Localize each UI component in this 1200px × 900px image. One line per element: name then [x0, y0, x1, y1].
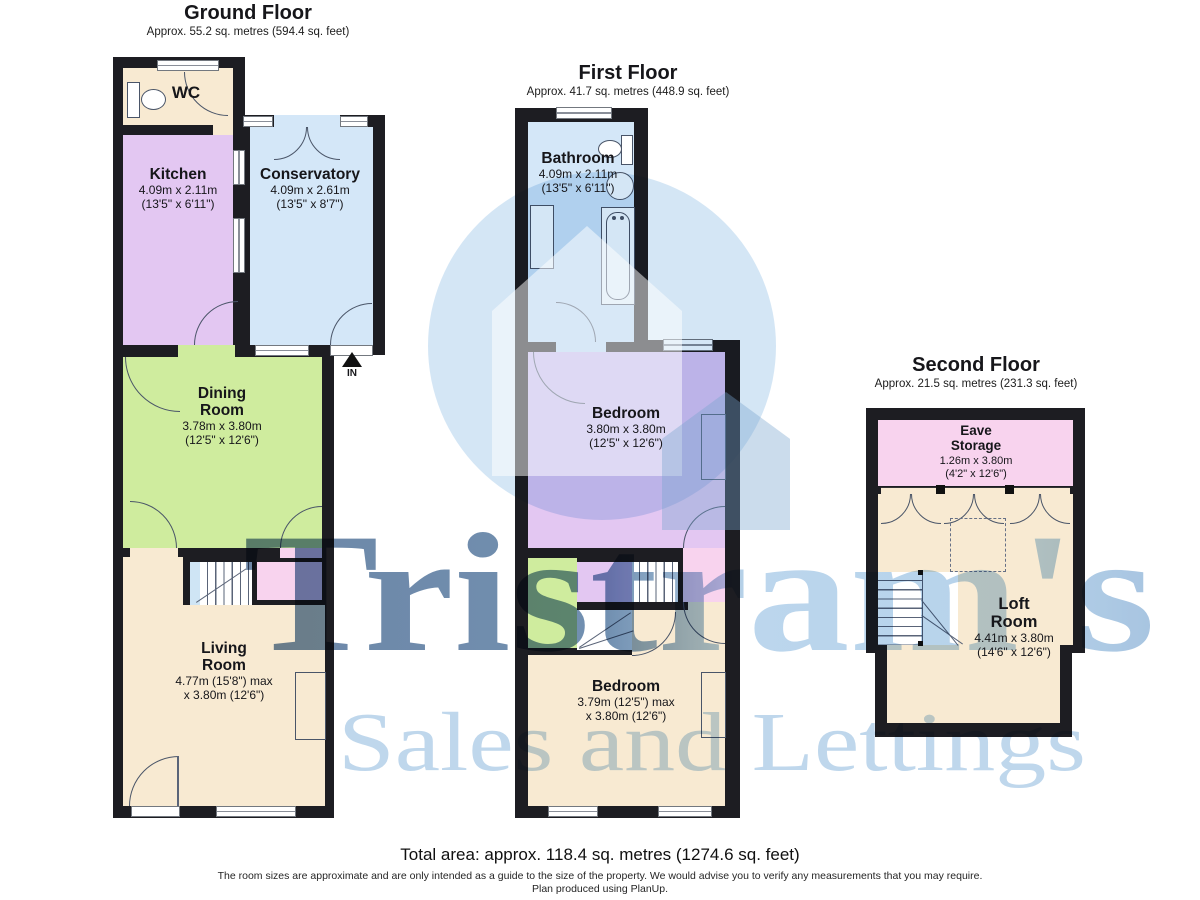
window — [658, 806, 712, 817]
toilet-bowl-icon — [141, 89, 166, 110]
window — [233, 150, 245, 185]
window — [556, 107, 612, 119]
doorway-opening — [280, 548, 322, 558]
wall-post — [1005, 485, 1014, 494]
room-dimensions: 3.80m x 3.80m — [586, 423, 665, 436]
room-name: Bedroom — [586, 405, 665, 422]
bathtub-inner — [606, 212, 630, 300]
window — [255, 345, 309, 356]
doorway-opening — [213, 125, 233, 135]
landing-floor — [577, 562, 632, 602]
room-name: Conservatory — [260, 166, 360, 183]
room-label-loft: Loft Room 4.41m x 3.80m (14'6" x 12'6") — [974, 595, 1053, 660]
room-label-conservatory: Conservatory 4.09m x 2.61m (13'5" x 8'7"… — [260, 166, 360, 211]
room-name: Living Room — [189, 640, 259, 674]
tap-icon — [620, 216, 624, 220]
room-label-wc: WC — [172, 84, 200, 103]
wardrobe-outline — [701, 672, 726, 738]
stair-winder-line — [921, 615, 963, 645]
room-dimensions: (13'5" x 6'11") — [539, 182, 617, 195]
room-dimensions: (12'5" x 12'6") — [182, 434, 261, 447]
door-leaf — [177, 756, 179, 806]
room-dimensions: 4.77m (15'8") max — [175, 675, 272, 688]
stair-treads — [878, 572, 922, 645]
room-label-bedroom1: Bedroom 3.80m x 3.80m (12'5" x 12'6") — [586, 405, 665, 450]
toilet-cistern-icon — [621, 135, 633, 165]
closet-floor — [257, 562, 322, 600]
stair-rail — [922, 572, 923, 645]
furniture-outline — [295, 672, 326, 740]
tap-icon — [612, 216, 616, 220]
room-name: Bathroom — [539, 150, 617, 167]
room-label-eave-storage: Eave Storage 1.26m x 3.80m (4'2" x 12'6"… — [940, 424, 1013, 480]
entrance-label: IN — [347, 368, 357, 379]
cupboard-opening — [881, 487, 1070, 494]
total-area-text: Total area: approx. 118.4 sq. metres (12… — [0, 845, 1200, 865]
doorway-opening — [274, 115, 340, 127]
room-dimensions: 4.41m x 3.80m — [974, 632, 1053, 645]
room-label-living: Living Room 4.77m (15'8") max x 3.80m (1… — [175, 640, 272, 702]
room-name: Kitchen — [139, 166, 217, 183]
first-floor-title: First Floor — [579, 62, 678, 85]
room-dimensions: x 3.80m (12'6") — [175, 689, 272, 702]
room-dimensions: 3.79m (12'5") max — [577, 696, 674, 709]
staircase-down — [577, 610, 632, 650]
stair-winder-line — [579, 612, 631, 648]
doorway-opening — [683, 548, 725, 558]
produced-by-text: Plan produced using PlanUp. — [0, 883, 1200, 895]
window — [243, 116, 273, 127]
staircase — [878, 572, 958, 645]
room-name: WC — [172, 84, 200, 103]
room-dimensions: (4'2" x 12'6") — [940, 468, 1013, 480]
window — [340, 116, 368, 127]
window — [233, 218, 245, 273]
second-floor-subtitle: Approx. 21.5 sq. metres (231.3 sq. feet) — [875, 378, 1078, 390]
room-dimensions: 4.09m x 2.61m — [260, 184, 360, 197]
room-dimensions: 3.78m x 3.80m — [182, 420, 261, 433]
room-dimensions: (14'6" x 12'6") — [974, 646, 1053, 659]
second-floor-title: Second Floor — [912, 354, 1040, 377]
room-dimensions: x 3.80m (12'6") — [577, 710, 674, 723]
window — [548, 806, 598, 817]
landing-floor — [528, 558, 577, 648]
room-name: Dining Room — [187, 385, 257, 419]
stair-winder-line — [921, 600, 959, 646]
disclaimer-text: The room sizes are approximate and are o… — [0, 870, 1200, 882]
room-name: Eave Storage — [941, 424, 1011, 454]
newel-post — [918, 641, 923, 646]
room-name: Loft Room — [984, 595, 1044, 631]
radiator-icon — [530, 205, 554, 269]
hallway-floor — [123, 557, 183, 605]
room-name: Bedroom — [577, 678, 674, 695]
toilet-cistern-icon — [127, 82, 140, 118]
room-dimensions: 4.09m x 2.11m — [539, 168, 617, 181]
front-door-threshold — [131, 806, 180, 817]
staircase — [190, 562, 252, 605]
floorplan-page: Ground Floor Approx. 55.2 sq. metres (59… — [0, 0, 1200, 900]
first-floor-subtitle: Approx. 41.7 sq. metres (448.9 sq. feet) — [527, 86, 730, 98]
room-label-dining: Dining Room 3.78m x 3.80m (12'5" x 12'6"… — [182, 385, 261, 447]
room-dimensions: 1.26m x 3.80m — [940, 455, 1013, 467]
room-dimensions: (12'5" x 12'6") — [586, 437, 665, 450]
doorway-opening — [178, 345, 235, 357]
wardrobe-outline — [701, 414, 726, 480]
stair-landing-strip — [190, 562, 200, 605]
landing-floor — [683, 558, 725, 602]
entrance-arrow-icon — [342, 352, 362, 367]
newel-post — [918, 570, 923, 575]
room-label-bedroom2: Bedroom 3.79m (12'5") max x 3.80m (12'6"… — [577, 678, 674, 723]
room-dimensions: 4.09m x 2.11m — [139, 184, 217, 197]
stair-treads — [632, 562, 678, 602]
wall-post — [936, 485, 945, 494]
room-label-bathroom: Bathroom 4.09m x 2.11m (13'5" x 6'11") — [539, 150, 617, 195]
room-label-kitchen: Kitchen 4.09m x 2.11m (13'5" x 6'11") — [139, 166, 217, 211]
window — [157, 60, 219, 71]
ground-floor-subtitle: Approx. 55.2 sq. metres (594.4 sq. feet) — [147, 26, 350, 38]
ground-floor-title: Ground Floor — [184, 2, 312, 25]
window — [216, 806, 296, 817]
window — [663, 339, 713, 351]
restricted-height-outline — [950, 518, 1006, 572]
room-dimensions: (13'5" x 6'11") — [139, 198, 217, 211]
room-dimensions: (13'5" x 8'7") — [260, 198, 360, 211]
staircase-up — [632, 562, 678, 602]
stair-winder-line — [579, 630, 634, 649]
